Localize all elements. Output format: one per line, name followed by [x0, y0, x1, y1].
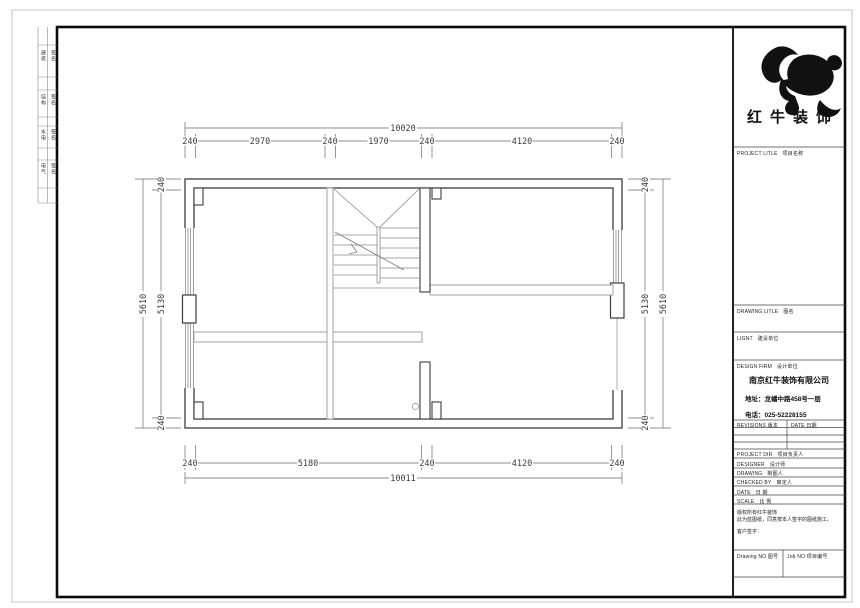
- dim: 240: [182, 459, 197, 469]
- drawing-label-zh: 图名: [783, 309, 793, 315]
- dim: 5180: [298, 459, 318, 469]
- dim: 240: [157, 415, 167, 430]
- client-label-zh: 建设单位: [758, 336, 779, 342]
- strip-cell: 签名: [49, 94, 56, 106]
- label-en: PROJECT DIR: [737, 452, 772, 458]
- dim-right-total: 5610: [659, 294, 669, 314]
- strip-cell: 签名: [49, 129, 56, 141]
- corner-pier: [432, 402, 441, 419]
- dim-bottom-total: 10011: [390, 474, 416, 484]
- staff-row-label: PROJECT DIR项目负责人: [737, 451, 803, 458]
- copyright-note: 版权所有红牛装饰: [737, 509, 777, 516]
- blueprint-note: 此为蓝图纸，同意按本人签字的图纸施工。: [737, 516, 832, 523]
- label-zh: 比 例: [759, 499, 771, 505]
- corner-pier: [432, 188, 441, 199]
- dim: 240: [182, 137, 197, 147]
- project-title-label: PROJECT LITLE项目名称: [737, 150, 803, 157]
- strip-cell: 建筑: [39, 50, 46, 62]
- drawing-title-label: DRAWING LITLE图名: [737, 308, 794, 315]
- dim: 5130: [157, 294, 167, 314]
- date-col-label: DATE 日期: [791, 422, 817, 429]
- interior-wall-h-right: [430, 285, 613, 295]
- client-label: LIGNT建设单位: [737, 335, 779, 342]
- staff-row-label: CHECKED BY审定人: [737, 479, 792, 486]
- dim: 240: [609, 459, 624, 469]
- label-en: DATE: [737, 490, 751, 496]
- dim: 1970: [368, 137, 388, 147]
- label-en: DRAWING: [737, 471, 762, 477]
- company-address: 地址：龙蟠中路458号一层: [745, 393, 821, 403]
- label-en: SCALE: [737, 499, 754, 505]
- project-label-zh: 项目名称: [783, 151, 804, 157]
- strip-cell: 结构: [39, 94, 46, 106]
- drawing-no-label: Drawing NO 图号: [737, 553, 778, 560]
- label-en: DESIGNER: [737, 462, 765, 468]
- dim-top-total: 10020: [390, 124, 416, 134]
- interior-wall-h-left: [194, 332, 422, 342]
- client-signature-label: 客户签字：: [737, 528, 762, 535]
- client-label-en: LIGNT: [737, 336, 753, 342]
- dim: 240: [322, 137, 337, 147]
- staff-row-label: DESIGNER设计师: [737, 461, 785, 468]
- drawing-label-en: DRAWING LITLE: [737, 309, 778, 315]
- staff-row-label: SCALE比 例: [737, 498, 771, 505]
- stair-wall-lower: [420, 362, 430, 419]
- strip-cell: 水电: [39, 129, 46, 141]
- label-zh: 审定人: [777, 480, 793, 486]
- floorplan-linework: 10020 240 2970 240 1970 240 4120 240 240…: [0, 0, 860, 608]
- staff-row-label: DATE日 期: [737, 489, 768, 496]
- dim: 2970: [250, 137, 270, 147]
- brand-name: 红牛装饰: [733, 106, 845, 127]
- strip-cell: 签名: [49, 163, 56, 175]
- dim: 240: [157, 177, 167, 192]
- corner-pier: [194, 188, 203, 205]
- dim: 4120: [512, 137, 532, 147]
- dim: 4120: [512, 459, 532, 469]
- design-firm-label: DESIGN FIRM设计单位: [737, 363, 798, 370]
- dim-left-total: 5610: [139, 294, 149, 314]
- dim: 240: [609, 137, 624, 147]
- label-zh: 项目负责人: [777, 452, 803, 458]
- dim: 5130: [641, 294, 651, 314]
- stair-wall-upper: [420, 188, 430, 292]
- design-firm-label-zh: 设计单位: [777, 364, 798, 370]
- label-zh: 设计师: [770, 462, 786, 468]
- drawing-sheet: 10020 240 2970 240 1970 240 4120 240 240…: [0, 0, 860, 608]
- label-zh: 日 期: [756, 490, 768, 496]
- pier-left: [183, 295, 197, 323]
- dim: 240: [419, 459, 434, 469]
- interior-wall-v-middle: [327, 188, 333, 419]
- job-no-label: Job NO 项目编号: [787, 553, 828, 560]
- corner-pier: [194, 402, 203, 419]
- strip-cell: 电气: [39, 163, 46, 175]
- revisions-label: REVISIONS 版本: [737, 422, 778, 429]
- dim: 240: [419, 137, 434, 147]
- strip-cell: 签名: [49, 50, 56, 62]
- staff-row-label: DRAWING制图人: [737, 470, 783, 477]
- project-label-en: PROJECT LITLE: [737, 151, 778, 157]
- design-firm-label-en: DESIGN FIRM: [737, 364, 772, 370]
- company-name: 南京红牛装饰有限公司: [733, 375, 845, 386]
- label-zh: 制图人: [767, 471, 783, 477]
- dim: 240: [641, 177, 651, 192]
- label-en: CHECKED BY: [737, 480, 772, 486]
- drawing-frame: [57, 27, 845, 597]
- company-phone: 电话：025-52228155: [745, 409, 806, 419]
- dim: 240: [641, 415, 651, 430]
